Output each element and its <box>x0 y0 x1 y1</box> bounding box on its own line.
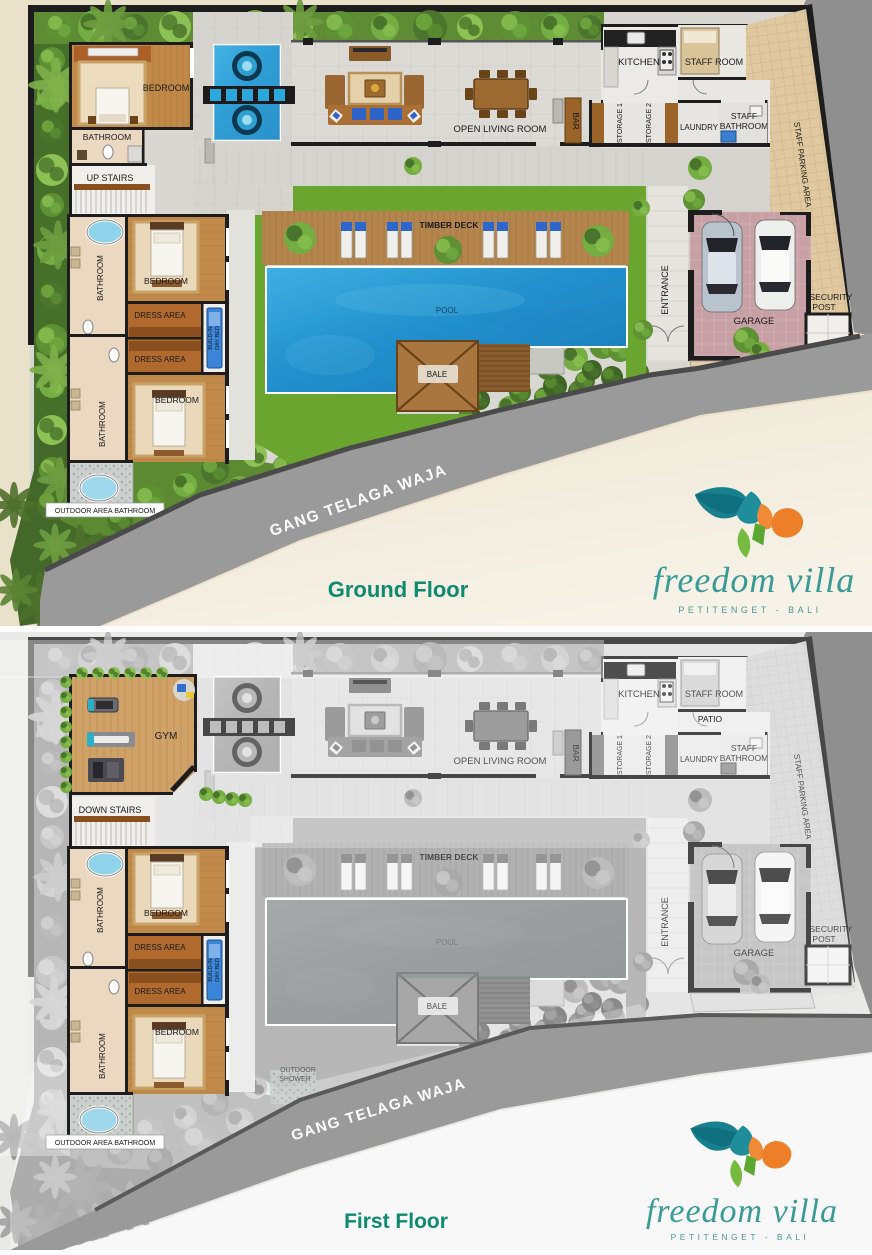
svg-text:Ground Floor: Ground Floor <box>328 577 469 602</box>
svg-text:UP STAIRS: UP STAIRS <box>87 173 134 183</box>
svg-text:BEDROOM: BEDROOM <box>143 83 190 93</box>
svg-text:freedom villa: freedom villa <box>646 1193 838 1230</box>
svg-text:First Floor: First Floor <box>344 1210 448 1233</box>
svg-text:OUTDOOR: OUTDOOR <box>280 1067 316 1074</box>
svg-text:PETITENGET - BALI: PETITENGET - BALI <box>671 1232 810 1242</box>
svg-text:freedom villa: freedom villa <box>653 560 856 600</box>
svg-text:SHOWER: SHOWER <box>279 1076 311 1083</box>
svg-text:PETITENGET - BALI: PETITENGET - BALI <box>678 605 821 615</box>
svg-text:BATHROOM: BATHROOM <box>83 132 131 142</box>
svg-text:GYM: GYM <box>155 731 178 742</box>
svg-text:PATIO: PATIO <box>698 714 723 724</box>
svg-text:DOWN STAIRS: DOWN STAIRS <box>79 805 142 815</box>
